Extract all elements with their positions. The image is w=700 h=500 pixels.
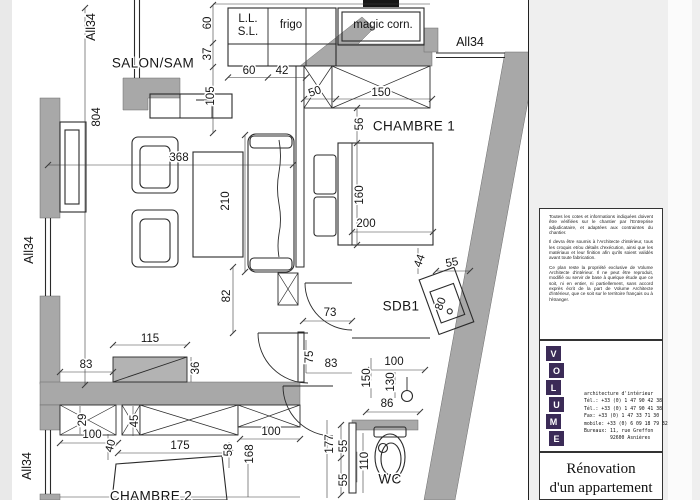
disc-p: Il devra être soumis à l'Architecte d'in… xyxy=(549,239,653,260)
dim-label: 55 xyxy=(338,440,350,453)
dim-label: 177 xyxy=(324,434,336,453)
dim-label: 29 xyxy=(77,414,89,427)
dim-label: 42 xyxy=(276,65,289,77)
dim-label: 150 xyxy=(371,87,390,99)
room-label: SALON/SAM xyxy=(112,56,194,71)
disc-p: Toutes les cotes et informations indiqué… xyxy=(549,214,653,235)
partition-wc-left xyxy=(349,423,356,493)
disc-p: Ce plan reste la propriété exclusive de … xyxy=(549,265,653,302)
hob xyxy=(363,0,399,7)
dim-label: 175 xyxy=(170,440,189,452)
dim-label: 83 xyxy=(80,359,93,371)
floor-plan: 8043682108211583366037105604250150561602… xyxy=(0,0,528,500)
project-title-line1: Rénovation xyxy=(540,460,662,479)
dim-label: 55 xyxy=(445,256,460,270)
dim-label: 150 xyxy=(361,368,373,387)
dim-label: 36 xyxy=(190,362,202,375)
dim-label: 60 xyxy=(243,65,256,77)
room-label: CHAMBRE 1 xyxy=(373,119,455,134)
logo-tile: E xyxy=(549,431,564,446)
logo-tile: U xyxy=(549,397,564,412)
disclaimer-panel: Toutes les cotes et informations indiqué… xyxy=(539,208,663,340)
fixture-label: S.L. xyxy=(238,26,258,38)
dim-label: 83 xyxy=(325,358,338,370)
logo-tile: V xyxy=(546,346,561,361)
dim-label: 110 xyxy=(359,452,371,470)
window-label: All34 xyxy=(456,35,484,49)
dim-label: 60 xyxy=(202,17,214,30)
dim-label: 368 xyxy=(169,152,188,164)
wall-salon-bottom xyxy=(40,382,300,405)
dim-label: 56 xyxy=(354,118,366,131)
page-edge-strip xyxy=(668,0,692,500)
logo-letter-column: VOLUME xyxy=(546,346,564,448)
contact-block: architecture d'intérieurTél.: +33 (0) 1 … xyxy=(584,391,668,443)
window-label: All34 xyxy=(22,236,36,264)
dim-label: 45 xyxy=(129,415,141,428)
contact-line: Bureaux: 11, rue Greffon xyxy=(584,428,668,435)
title-block-column: Toutes les cotes et informations indiqué… xyxy=(528,0,700,500)
partition-salon-chambre1 xyxy=(296,66,304,267)
dim-label: 75 xyxy=(304,351,316,364)
logo-tile: L xyxy=(546,380,561,395)
contact-line: Fax: +33 (0) 1 47 33 71 30 xyxy=(584,413,668,420)
dim-label: 210 xyxy=(220,191,232,210)
dim-label: 160 xyxy=(354,185,366,204)
project-title-line2: d'un appartement xyxy=(540,479,662,498)
dim-label: 115 xyxy=(141,333,159,345)
fixture-label: magic corn. xyxy=(353,19,412,31)
logo-tile: O xyxy=(549,363,564,378)
dim-label: 804 xyxy=(91,107,103,127)
wall-window-jamb xyxy=(424,28,438,52)
window-label: All34 xyxy=(20,452,34,480)
wall-kitchen-right xyxy=(336,44,432,66)
dim-label: 82 xyxy=(221,290,233,303)
dim-label: 58 xyxy=(223,444,235,457)
dim-label: 100 xyxy=(82,429,101,441)
window-label: All34 xyxy=(84,13,98,41)
dim-label: 168 xyxy=(244,444,256,463)
contact-line: Tél.: +33 (0) 1 47 90 42 38 xyxy=(584,398,668,405)
room-label: CHAMBRE 2 xyxy=(110,489,192,500)
dim-label: 55 xyxy=(338,474,350,487)
dim-label: 130 xyxy=(385,372,397,391)
fixture-label: frigo xyxy=(280,19,302,31)
dim-label: 73 xyxy=(324,307,337,319)
wall-left-lower xyxy=(40,296,60,384)
room-label: SDB1 xyxy=(383,299,420,314)
wall-above-wc xyxy=(352,420,418,430)
dim-label: 200 xyxy=(356,218,375,230)
contact-line: mobile: +33 (0) 6 09 18 79 32 xyxy=(584,421,668,428)
project-title-panel: Rénovation d'un appartement xyxy=(539,452,663,500)
contact-line: 92600 Asnières xyxy=(584,435,668,442)
wall-left-bottom-cap xyxy=(40,405,60,430)
dim-label: 100 xyxy=(384,356,403,368)
wall-left-mid xyxy=(40,98,60,218)
dim-label: 105 xyxy=(205,86,217,105)
contact-line: Tél.: +33 (0) 1 47 90 41 38 xyxy=(584,406,668,413)
dim-label: 100 xyxy=(261,426,280,438)
dim-label: 37 xyxy=(202,48,214,61)
fixture-label: L.L. xyxy=(238,13,257,25)
logo-panel: VOLUME architecture d'intérieurTél.: +33… xyxy=(539,340,663,452)
logo-tile: M xyxy=(546,414,561,429)
contact-line: architecture d'intérieur xyxy=(584,391,668,398)
wall-left-bottom-end xyxy=(40,494,60,500)
dim-label: 86 xyxy=(381,398,394,410)
room-label: WC xyxy=(378,472,401,487)
